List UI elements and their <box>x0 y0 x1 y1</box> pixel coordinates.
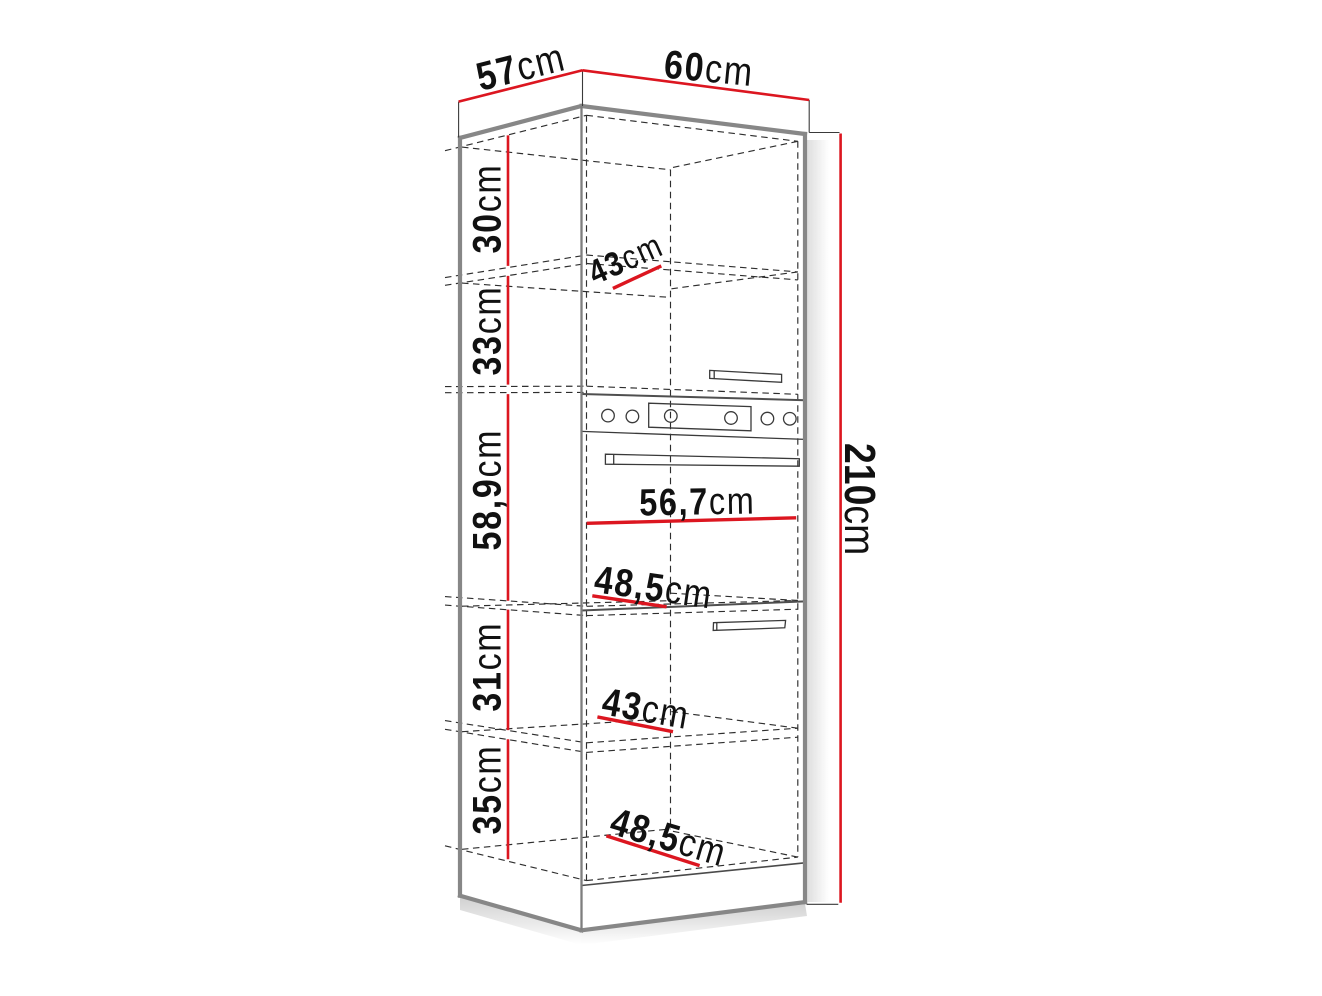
svg-text:58,9cm: 58,9cm <box>464 429 509 551</box>
svg-text:57cm: 57cm <box>472 34 570 100</box>
svg-text:48,5cm: 48,5cm <box>606 799 733 875</box>
svg-text:60cm: 60cm <box>662 41 756 95</box>
svg-text:48,5cm: 48,5cm <box>592 557 716 617</box>
svg-text:33cm: 33cm <box>464 286 509 376</box>
svg-text:31cm: 31cm <box>464 622 509 712</box>
svg-text:43cm: 43cm <box>599 679 693 738</box>
svg-text:30cm: 30cm <box>464 164 509 254</box>
svg-text:210cm: 210cm <box>835 443 885 555</box>
svg-text:35cm: 35cm <box>464 745 509 835</box>
svg-text:56,7cm: 56,7cm <box>639 480 756 524</box>
